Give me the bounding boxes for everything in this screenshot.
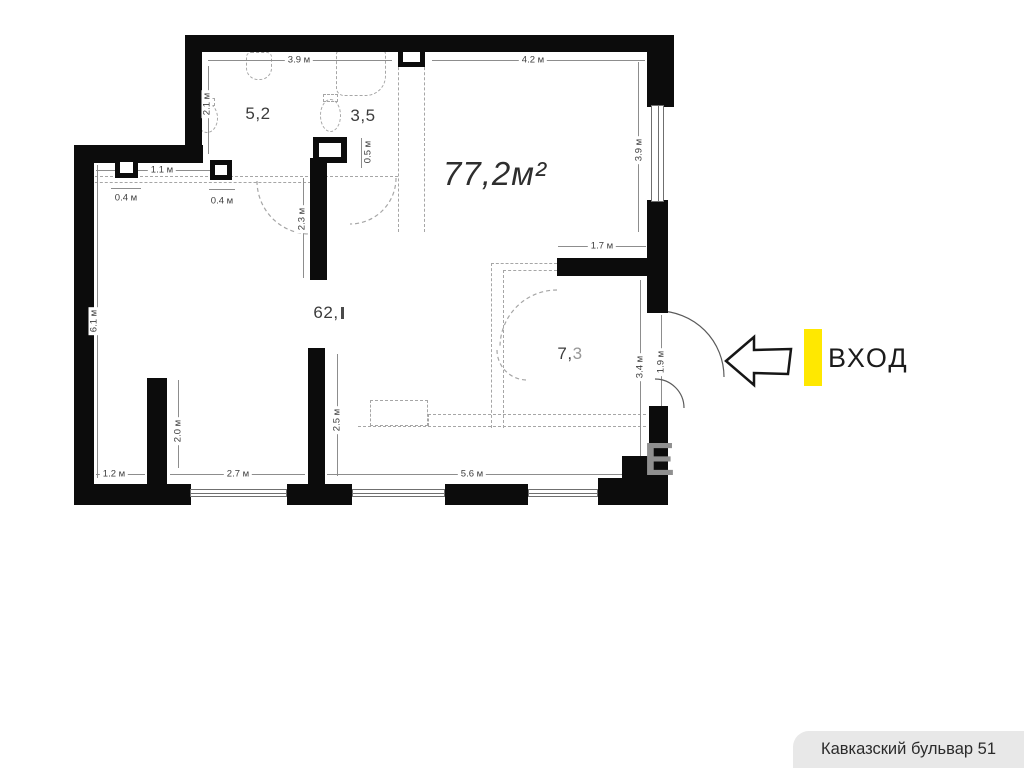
dimension-label: 0.4 м: [208, 196, 236, 207]
dimension-label: 4.2 м: [519, 55, 547, 66]
window: [190, 489, 287, 497]
wall: [647, 35, 674, 107]
dashed-door-arc: [497, 350, 527, 380]
dimension-label: 0.4 м: [112, 193, 140, 204]
dimension-label: 1.2 м: [100, 469, 128, 480]
entrance-door-arc: [658, 311, 724, 377]
column: [398, 47, 425, 67]
dimension-label: 2.5 м: [332, 406, 343, 434]
dimension-line: [209, 189, 235, 190]
dimension-label: 3.9 м: [285, 55, 313, 66]
dimension-label: 5.6 м: [458, 469, 486, 480]
entrance-label: ВХОД: [828, 343, 909, 374]
watermark-letter: Е: [644, 436, 675, 482]
dashed-partition: [503, 270, 557, 271]
dashed-door-arc: [500, 290, 557, 347]
wall: [308, 348, 325, 484]
dashed-door-arc: [350, 178, 396, 224]
total-area-label: 77,2м²: [443, 155, 547, 193]
room-area-label-part: 3: [573, 344, 583, 363]
dimension-label: 0.5 м: [363, 138, 374, 166]
window-glass-line: [529, 493, 597, 494]
wall: [287, 484, 352, 505]
window: [352, 489, 445, 497]
shower-icon: [336, 50, 386, 96]
wall: [310, 158, 327, 280]
room-area-label-part: 7,: [557, 344, 572, 363]
address-text: Кавказский бульвар 51: [821, 740, 996, 759]
dimension-line: [111, 188, 141, 189]
dimension-label: 2.1 м: [202, 90, 213, 118]
wall: [647, 200, 668, 313]
dimension-label: 2.7 м: [224, 469, 252, 480]
column: [313, 137, 347, 163]
window: [651, 105, 664, 202]
dashed-partition: [370, 400, 428, 426]
dimension-label: 1.9 м: [656, 348, 667, 376]
wall: [445, 484, 528, 505]
wall: [185, 35, 202, 162]
entrance-door-arc-small: [655, 379, 684, 408]
column: [210, 160, 232, 180]
dashed-partition: [428, 414, 646, 415]
window-glass-line: [658, 106, 659, 201]
wall: [74, 484, 191, 505]
wall: [557, 258, 658, 276]
room-area-label: 3,5: [350, 106, 375, 126]
dashed-partition: [491, 263, 492, 428]
toilet-icon: [320, 99, 341, 132]
dashed-partition: [358, 426, 646, 427]
dashed-partition: [491, 263, 557, 264]
room-area-label: 5,2: [245, 104, 270, 124]
dimension-label: 1.7 м: [588, 241, 616, 252]
wall: [185, 35, 668, 52]
floor-plan-page: { "colors": { "wall": "#0c0c0c", "accent…: [0, 0, 1024, 768]
dimension-label: 2.0 м: [173, 417, 184, 445]
toilet-tank-icon: [323, 94, 338, 102]
window-glass-line: [353, 493, 444, 494]
column: [115, 157, 138, 178]
wall: [147, 378, 167, 485]
dashed-partition: [428, 414, 429, 426]
dimension-label: 1.1 м: [148, 165, 176, 176]
dashed-partition: [80, 182, 311, 183]
dimension-label: 6.1 м: [89, 307, 100, 335]
clipped-digit-fragment: [341, 307, 344, 319]
window-glass-line: [191, 493, 286, 494]
dashed-partition: [503, 270, 504, 428]
dashed-partition: [424, 52, 425, 232]
entrance-marker: [804, 329, 822, 386]
dimension-label: 3.4 м: [635, 353, 646, 381]
dashed-partition: [398, 52, 399, 232]
dimension-label: 2.3 м: [297, 205, 308, 233]
address-badge: Кавказский бульвар 51: [793, 731, 1024, 768]
room-area-label: 62,: [313, 303, 338, 323]
dimension-label: 3.9 м: [634, 136, 645, 164]
room-area-label: 7,3: [557, 344, 582, 364]
sink-icon: [246, 52, 272, 80]
window: [528, 489, 598, 497]
